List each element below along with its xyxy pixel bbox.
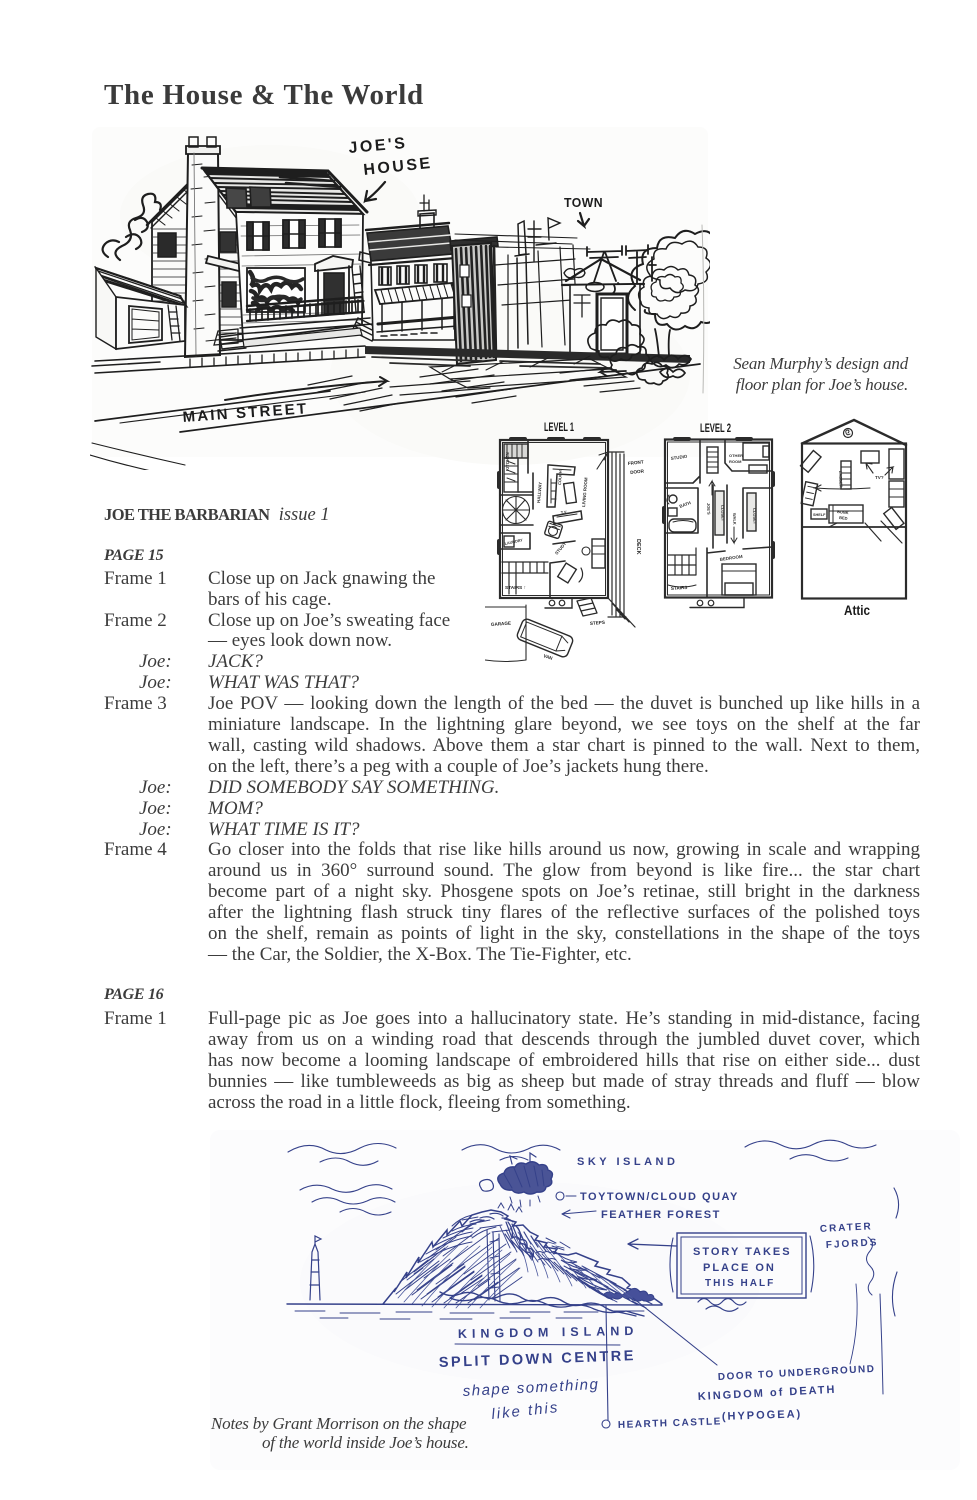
svg-text:LEVEL 1: LEVEL 1: [544, 420, 574, 434]
svg-text:STAIRS ↑: STAIRS ↑: [505, 585, 526, 591]
svg-text:PLACE ON: PLACE ON: [703, 1262, 776, 1274]
svg-text:CLOSET: CLOSET: [752, 508, 758, 525]
svg-text:JOE'S: JOE'S: [706, 503, 711, 515]
svg-text:Attic: Attic: [844, 602, 870, 618]
svg-text:LEVEL 2: LEVEL 2: [700, 421, 731, 435]
svg-text:BATH: BATH: [679, 500, 692, 509]
svg-text:STEPS: STEPS: [590, 620, 605, 626]
svg-text:BEDROOM: BEDROOM: [719, 554, 743, 562]
svg-text:DOOR: DOOR: [630, 468, 645, 474]
svg-text:HALLWAY: HALLWAY: [536, 482, 543, 503]
svg-text:BED: BED: [839, 515, 848, 521]
svg-text:STORY TAKES: STORY TAKES: [693, 1246, 792, 1258]
svg-text:LIVING ROOM: LIVING ROOM: [581, 477, 589, 507]
svg-text:FRONT: FRONT: [628, 459, 644, 466]
svg-text:THIS HALF: THIS HALF: [705, 1278, 775, 1289]
svg-text:TV?: TV?: [875, 475, 884, 480]
svg-text:TOYTOWN/CLOUD QUAY: TOYTOWN/CLOUD QUAY: [580, 1191, 739, 1203]
svg-text:STUDIO: STUDIO: [670, 454, 688, 461]
svg-text:SKY ISLAND: SKY ISLAND: [577, 1156, 678, 1168]
svg-text:GARAGE: GARAGE: [491, 621, 511, 627]
svg-text:DECK: DECK: [635, 539, 641, 555]
svg-text:WALK: WALK: [732, 513, 737, 525]
svg-text:SHELF: SHELF: [813, 513, 826, 517]
svg-text:LADDER: LADDER: [838, 471, 844, 488]
svg-text:CLOSET: CLOSET: [720, 505, 726, 522]
svg-text:STAIRS: STAIRS: [671, 585, 688, 591]
svg-text:VAN: VAN: [543, 653, 554, 661]
svg-text:T.V.: T.V.: [560, 509, 567, 515]
svg-text:KITCHEN: KITCHEN: [505, 452, 510, 471]
svg-text:OTHER: OTHER: [729, 453, 743, 458]
svg-text:FEATHER FOREST: FEATHER FOREST: [601, 1209, 721, 1221]
svg-text:ROOM: ROOM: [729, 459, 742, 464]
svg-text:COUCH: COUCH: [557, 470, 563, 485]
svg-text:TOWN: TOWN: [564, 195, 603, 210]
